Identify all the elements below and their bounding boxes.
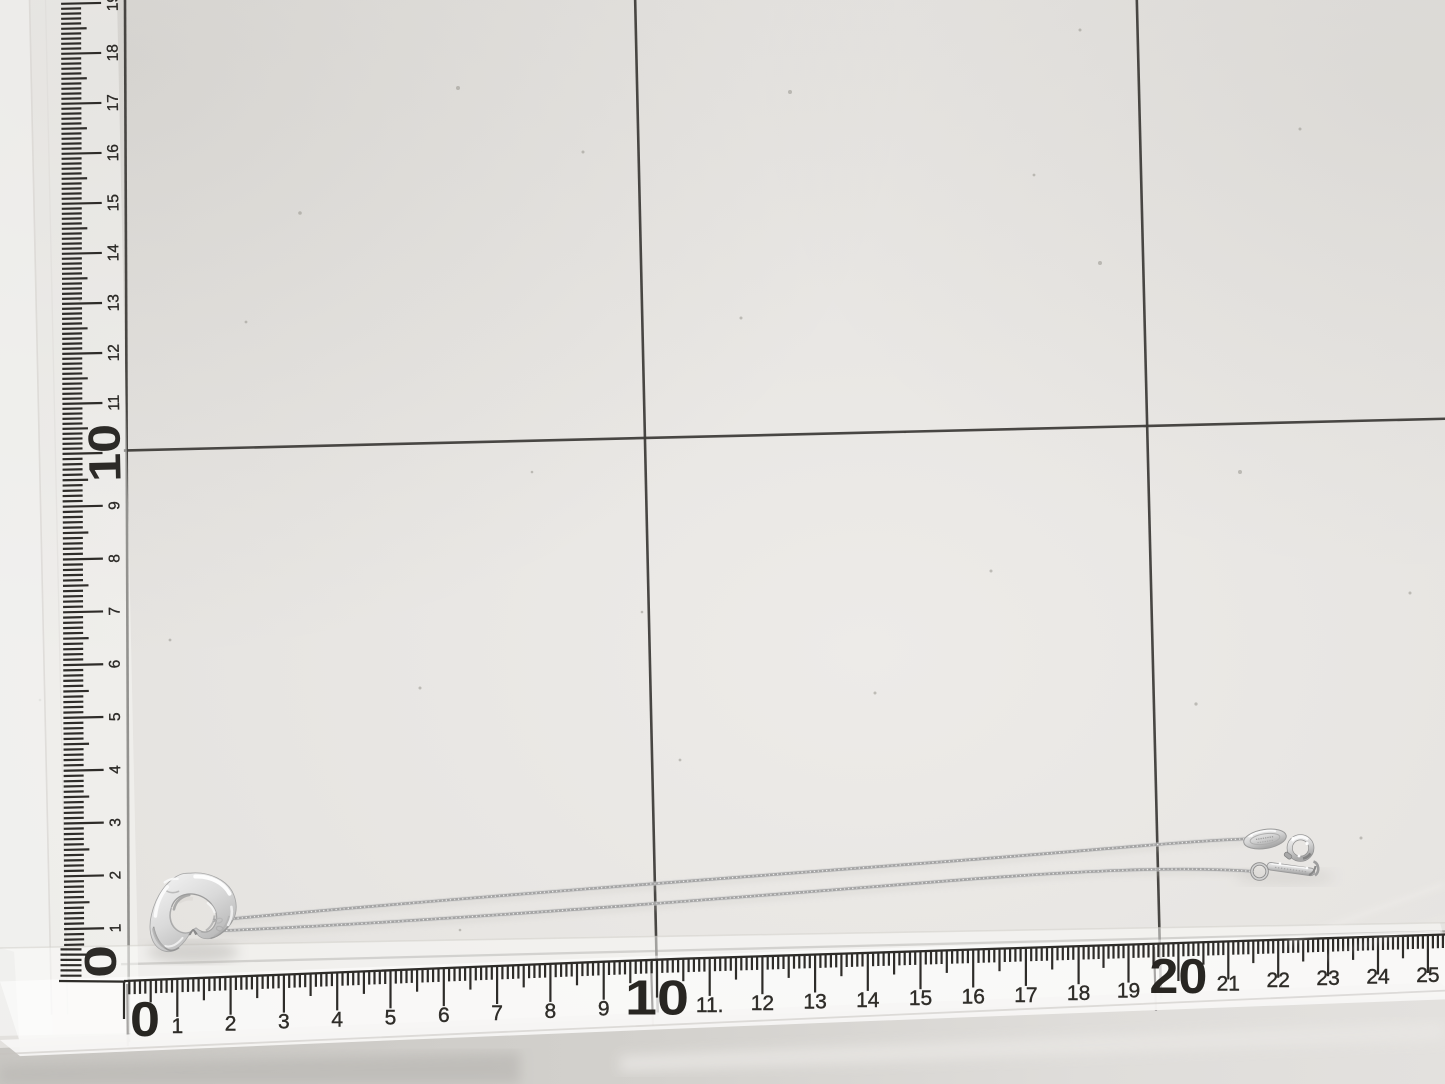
svg-text:1: 1 bbox=[171, 1015, 183, 1038]
svg-text:22: 22 bbox=[1267, 969, 1290, 992]
svg-text:24: 24 bbox=[1366, 966, 1390, 989]
svg-text:13: 13 bbox=[803, 991, 826, 1014]
svg-text:0: 0 bbox=[75, 944, 127, 978]
svg-text:4: 4 bbox=[107, 765, 124, 774]
svg-text:8: 8 bbox=[545, 1000, 557, 1023]
svg-text:3: 3 bbox=[107, 818, 124, 827]
svg-text:23: 23 bbox=[1316, 967, 1339, 990]
svg-text:12: 12 bbox=[751, 992, 774, 1015]
svg-text:19: 19 bbox=[104, 0, 121, 11]
svg-text:9: 9 bbox=[106, 501, 123, 510]
svg-text:5: 5 bbox=[107, 712, 124, 721]
svg-text:16: 16 bbox=[105, 144, 122, 162]
svg-text:19: 19 bbox=[1117, 979, 1140, 1002]
svg-text:11: 11 bbox=[106, 394, 123, 410]
svg-text:7: 7 bbox=[106, 607, 123, 616]
svg-text:14: 14 bbox=[105, 244, 122, 262]
svg-text:17: 17 bbox=[105, 94, 122, 112]
svg-text:8: 8 bbox=[106, 554, 123, 563]
svg-text:18: 18 bbox=[1067, 982, 1090, 1005]
svg-text:3: 3 bbox=[278, 1011, 290, 1034]
svg-text:15: 15 bbox=[105, 194, 122, 212]
svg-text:17: 17 bbox=[1014, 984, 1037, 1007]
svg-text:13: 13 bbox=[105, 294, 122, 312]
svg-text:18: 18 bbox=[104, 44, 121, 62]
svg-text:10: 10 bbox=[625, 972, 689, 1026]
svg-text:1: 1 bbox=[107, 924, 124, 933]
svg-text:7: 7 bbox=[491, 1002, 503, 1025]
svg-text:11.: 11. bbox=[696, 994, 724, 1017]
svg-text:5: 5 bbox=[385, 1006, 397, 1029]
svg-text:25: 25 bbox=[1416, 964, 1439, 987]
svg-text:16: 16 bbox=[962, 986, 985, 1009]
svg-text:6: 6 bbox=[438, 1004, 450, 1027]
svg-text:4: 4 bbox=[331, 1008, 343, 1031]
svg-text:20: 20 bbox=[1149, 950, 1207, 1004]
svg-text:15: 15 bbox=[909, 987, 932, 1010]
svg-text:2: 2 bbox=[225, 1013, 237, 1036]
svg-text:6: 6 bbox=[107, 659, 124, 668]
svg-text:12: 12 bbox=[106, 344, 123, 362]
svg-text:21: 21 bbox=[1217, 972, 1240, 995]
svg-text:14: 14 bbox=[856, 989, 880, 1012]
svg-text:10: 10 bbox=[78, 423, 130, 482]
svg-text:9: 9 bbox=[598, 998, 610, 1021]
svg-text:0: 0 bbox=[130, 993, 160, 1047]
svg-text:2: 2 bbox=[107, 871, 124, 880]
